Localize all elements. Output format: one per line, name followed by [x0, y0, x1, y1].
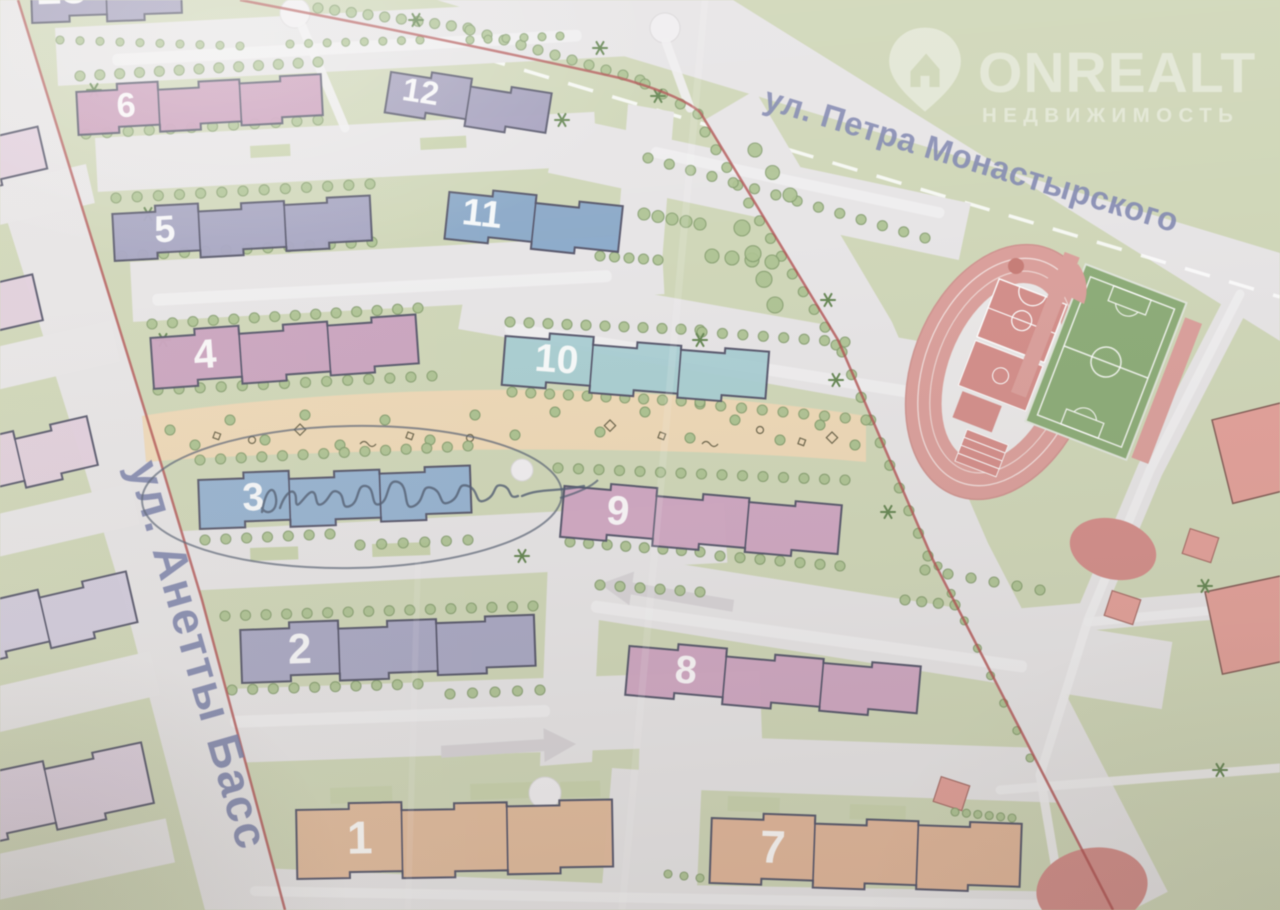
- tree: [728, 178, 738, 188]
- playground-tree: [380, 415, 390, 425]
- lawn-patch: [420, 136, 467, 150]
- tree: [697, 469, 707, 479]
- tree: [282, 609, 292, 619]
- tree: [195, 455, 205, 465]
- tree: [405, 605, 415, 615]
- tree: [835, 561, 845, 571]
- tree: [717, 328, 727, 338]
- playground-tree: [225, 415, 235, 425]
- tree: [286, 40, 294, 48]
- tree: [372, 680, 382, 690]
- tree: [502, 34, 510, 42]
- tree: [75, 71, 85, 81]
- tree: [985, 812, 993, 820]
- tree: [364, 606, 374, 616]
- tree: [664, 870, 672, 878]
- building-number: 9: [605, 487, 632, 535]
- tree: [301, 377, 311, 387]
- tree: [696, 874, 704, 882]
- tree: [273, 59, 283, 69]
- tree: [214, 63, 224, 73]
- tree: [425, 604, 435, 614]
- tree: [446, 604, 456, 614]
- tree: [398, 538, 408, 548]
- tree: [748, 143, 762, 157]
- tree: [123, 126, 133, 136]
- tree: [653, 255, 663, 265]
- building-number: 10: [533, 336, 580, 383]
- tree: [581, 320, 591, 330]
- building-footprint: [296, 798, 613, 880]
- tree: [406, 372, 416, 382]
- tree: [422, 443, 432, 453]
- tree: [877, 221, 887, 231]
- tree: [775, 556, 785, 566]
- tree: [779, 333, 789, 343]
- tree: [208, 315, 218, 325]
- tree: [136, 39, 144, 47]
- tree: [840, 475, 850, 485]
- tree: [188, 317, 198, 327]
- tree: [111, 193, 121, 203]
- onrealt-pin-icon: [885, 23, 966, 117]
- tree: [966, 573, 976, 583]
- tree: [799, 473, 809, 483]
- tree: [920, 233, 930, 243]
- tree: [277, 451, 287, 461]
- tree: [292, 116, 302, 126]
- tree: [799, 409, 809, 419]
- tree: [196, 41, 204, 49]
- tree: [507, 387, 517, 397]
- tree: [920, 565, 930, 575]
- tree: [325, 529, 335, 539]
- tree: [153, 191, 163, 201]
- building-number: 6: [116, 86, 137, 125]
- tree: [56, 36, 64, 44]
- tree: [779, 472, 789, 482]
- tree: [524, 318, 534, 328]
- tree: [652, 211, 664, 223]
- tree: [234, 62, 244, 72]
- tree: [463, 535, 473, 545]
- tree: [96, 37, 104, 45]
- tree: [372, 305, 382, 315]
- tree: [216, 41, 224, 49]
- tree: [962, 809, 970, 817]
- tree: [595, 580, 605, 590]
- tree: [737, 403, 747, 413]
- lawn-patch: [470, 782, 537, 800]
- tree: [610, 252, 620, 262]
- tree: [639, 254, 649, 264]
- tree: [750, 184, 760, 194]
- tree: [466, 603, 476, 613]
- playground-tree: [510, 430, 520, 440]
- tree: [562, 319, 572, 329]
- tree: [700, 127, 710, 137]
- tree: [535, 685, 545, 695]
- tree: [302, 183, 312, 193]
- tree: [238, 186, 248, 196]
- tree: [313, 3, 323, 13]
- tree: [735, 553, 745, 563]
- building-number: 8: [673, 647, 699, 693]
- tree: [595, 251, 605, 261]
- tree: [280, 184, 290, 194]
- tree: [154, 66, 164, 76]
- tree: [734, 220, 750, 236]
- tree: [174, 65, 184, 75]
- tree: [319, 449, 329, 459]
- tree: [254, 61, 264, 71]
- tree: [229, 314, 239, 324]
- tree: [200, 535, 210, 545]
- tree: [917, 597, 927, 607]
- tree: [442, 442, 452, 452]
- lawn-patch: [560, 781, 601, 798]
- tree: [257, 452, 267, 462]
- building-number: 5: [153, 207, 176, 250]
- tree: [364, 374, 374, 384]
- building-number: 4: [192, 330, 218, 377]
- playground-tree: [730, 415, 740, 425]
- playground-tree: [190, 440, 200, 450]
- tree: [553, 463, 563, 473]
- tree: [694, 218, 706, 230]
- tree: [799, 334, 809, 344]
- tree: [220, 611, 230, 621]
- tree: [430, 19, 440, 29]
- tree: [766, 166, 780, 180]
- tree: [856, 215, 866, 225]
- tree: [755, 554, 765, 564]
- tree: [556, 32, 564, 40]
- tree: [615, 466, 625, 476]
- lawn-patch: [330, 786, 393, 804]
- tree: [156, 39, 164, 47]
- tree: [322, 376, 332, 386]
- tree: [167, 318, 177, 328]
- tree: [695, 587, 705, 597]
- tree: [249, 313, 259, 323]
- tree: [427, 371, 437, 381]
- tree: [380, 12, 390, 22]
- tree: [707, 171, 717, 181]
- tree: [1012, 581, 1022, 591]
- tree: [270, 312, 280, 322]
- tree: [505, 317, 515, 327]
- tree: [144, 125, 154, 135]
- tree: [463, 441, 473, 451]
- tree: [974, 810, 982, 818]
- tree: [638, 208, 650, 220]
- tree: [783, 188, 797, 202]
- roundabout: [511, 459, 533, 481]
- tree: [261, 610, 271, 620]
- tree: [355, 540, 365, 550]
- tree: [420, 537, 430, 547]
- tree: [675, 586, 685, 596]
- tree: [343, 607, 353, 617]
- building-number: 12: [400, 70, 442, 112]
- tree: [635, 466, 645, 476]
- building-number: 2: [287, 625, 312, 674]
- tree: [639, 543, 649, 553]
- tree: [533, 45, 543, 55]
- tree: [135, 68, 145, 78]
- tree: [520, 34, 528, 42]
- sport-dot: [1008, 258, 1024, 274]
- watermark-subtitle: НЕДВИЖИМОСТЬ: [982, 104, 1239, 127]
- tree: [115, 69, 125, 79]
- tree: [639, 394, 649, 404]
- tree: [236, 453, 246, 463]
- tree: [767, 297, 783, 313]
- tree: [384, 606, 394, 616]
- tree: [738, 330, 748, 340]
- tree: [657, 323, 667, 333]
- playground-tree: [470, 410, 480, 420]
- tree: [339, 447, 349, 457]
- tree: [397, 37, 405, 45]
- playground-tree: [775, 435, 785, 445]
- tree: [352, 307, 362, 317]
- tree: [550, 50, 560, 60]
- tree: [600, 321, 610, 331]
- tree: [543, 319, 553, 329]
- tree: [175, 190, 185, 200]
- tree: [293, 58, 303, 68]
- tree: [705, 249, 719, 263]
- tree: [351, 681, 361, 691]
- tree: [490, 687, 500, 697]
- playground-tree: [260, 435, 270, 445]
- tree: [248, 684, 258, 694]
- tree: [638, 323, 648, 333]
- tree: [268, 684, 278, 694]
- tree: [717, 470, 727, 480]
- tree: [820, 474, 830, 484]
- tree: [241, 610, 251, 620]
- tree: [377, 539, 387, 549]
- tree: [217, 187, 227, 197]
- tree: [360, 38, 368, 46]
- building-number: 11: [460, 190, 504, 236]
- tree: [305, 39, 313, 47]
- building-7: 7: [709, 812, 1021, 895]
- tree: [323, 608, 333, 618]
- tree: [757, 405, 767, 415]
- tree: [413, 303, 423, 313]
- tree: [147, 319, 157, 329]
- lawn-patch: [727, 796, 779, 813]
- tree: [132, 192, 142, 202]
- tree: [194, 64, 204, 74]
- tree: [951, 808, 959, 816]
- tree: [624, 253, 634, 263]
- tree: [758, 331, 768, 341]
- tree: [196, 188, 206, 198]
- tree: [242, 533, 252, 543]
- tree: [795, 558, 805, 568]
- tree: [655, 584, 665, 594]
- tree: [289, 683, 299, 693]
- tree: [379, 37, 387, 45]
- tree: [758, 472, 768, 482]
- tree: [815, 559, 825, 569]
- tree: [528, 601, 538, 611]
- tree: [304, 530, 314, 540]
- tree: [283, 531, 293, 541]
- tree: [738, 471, 748, 481]
- tree: [310, 682, 320, 692]
- watermark-brand: ONREALT: [978, 41, 1256, 105]
- tree: [1035, 585, 1045, 595]
- tree: [900, 595, 910, 605]
- tree: [176, 40, 184, 48]
- tree: [216, 454, 226, 464]
- tree: [643, 153, 653, 163]
- tree: [584, 60, 594, 70]
- pin-shape: [885, 23, 966, 117]
- tree: [840, 413, 850, 423]
- tree: [745, 246, 761, 262]
- tree: [621, 541, 631, 551]
- tree: [311, 309, 321, 319]
- tree: [441, 536, 451, 546]
- tree: [76, 37, 84, 45]
- map-photo-layer: 13654121110392817 ул. Петра Монастырског…: [0, 0, 1280, 910]
- tree: [468, 688, 478, 698]
- building-number: 13: [35, 0, 88, 14]
- tree: [664, 159, 674, 169]
- tree: [487, 602, 497, 612]
- tree: [381, 445, 391, 455]
- tree: [313, 57, 323, 67]
- tree: [466, 36, 474, 44]
- tree: [331, 308, 341, 318]
- tree: [943, 569, 953, 579]
- tree: [507, 602, 517, 612]
- tree: [343, 375, 353, 385]
- tree: [899, 227, 909, 237]
- lawn-patch: [250, 144, 291, 158]
- tree: [820, 336, 830, 346]
- tree: [574, 464, 584, 474]
- tree: [323, 39, 331, 47]
- playground-tree: [300, 410, 310, 420]
- tree: [619, 322, 629, 332]
- tree: [997, 813, 1005, 821]
- building-1: 1: [296, 798, 613, 880]
- tree: [342, 38, 350, 46]
- tree: [259, 185, 269, 195]
- tree: [360, 446, 370, 456]
- tree: [676, 468, 686, 478]
- tree: [820, 411, 830, 421]
- tree: [715, 551, 725, 561]
- tree: [298, 450, 308, 460]
- tree: [513, 686, 523, 696]
- tree: [725, 251, 739, 265]
- tree: [323, 181, 333, 191]
- playground-tree: [550, 407, 560, 417]
- roundabout: [529, 777, 561, 809]
- playground-tree: [595, 427, 605, 437]
- tree: [330, 682, 340, 692]
- tree: [385, 373, 395, 383]
- lawn-patch: [250, 546, 298, 561]
- building-footprint: [709, 812, 1021, 895]
- tree: [95, 70, 105, 80]
- master-plan-svg: 13654121110392817 ул. Петра Монастырског…: [0, 0, 1280, 910]
- tree: [861, 415, 871, 425]
- tree: [526, 388, 536, 398]
- playground-tree: [165, 425, 175, 435]
- tree: [666, 213, 678, 225]
- tree: [635, 583, 645, 593]
- playground-tree: [640, 407, 650, 417]
- tree: [567, 55, 577, 65]
- building-number: 1: [347, 811, 373, 863]
- tree: [594, 465, 604, 475]
- lawn-patch: [849, 804, 905, 821]
- tree: [330, 5, 340, 15]
- tree: [446, 21, 456, 31]
- tree: [344, 180, 354, 190]
- playground-tree: [685, 433, 695, 443]
- tree: [290, 310, 300, 320]
- tree: [116, 38, 124, 46]
- tree: [545, 389, 555, 399]
- tree: [716, 401, 726, 411]
- tree: [538, 33, 546, 41]
- tree: [263, 532, 273, 542]
- tree: [484, 35, 492, 43]
- tree: [445, 689, 455, 699]
- tree: [365, 179, 375, 189]
- tree: [1008, 814, 1016, 822]
- tree: [363, 10, 373, 20]
- tree: [765, 255, 779, 269]
- tree: [393, 304, 403, 314]
- tree: [835, 208, 845, 218]
- tree: [396, 14, 406, 24]
- tree: [563, 390, 573, 400]
- tree: [778, 407, 788, 417]
- tree: [401, 444, 411, 454]
- tree: [392, 680, 402, 690]
- tree: [216, 382, 226, 392]
- tree: [302, 608, 312, 618]
- tree: [771, 190, 781, 200]
- tree: [989, 577, 999, 587]
- playground-tree: [850, 440, 860, 450]
- tree: [236, 42, 244, 50]
- tree: [680, 872, 688, 880]
- tree: [756, 271, 772, 287]
- tree: [465, 25, 475, 35]
- building-number: 7: [759, 820, 786, 873]
- tree: [346, 7, 356, 17]
- site-plan-photo: 13654121110392817 ул. Петра Монастырског…: [0, 0, 1280, 910]
- tree: [813, 202, 823, 212]
- playground-tree: [815, 420, 825, 430]
- tree: [221, 534, 231, 544]
- tree: [933, 598, 943, 608]
- tree: [615, 581, 625, 591]
